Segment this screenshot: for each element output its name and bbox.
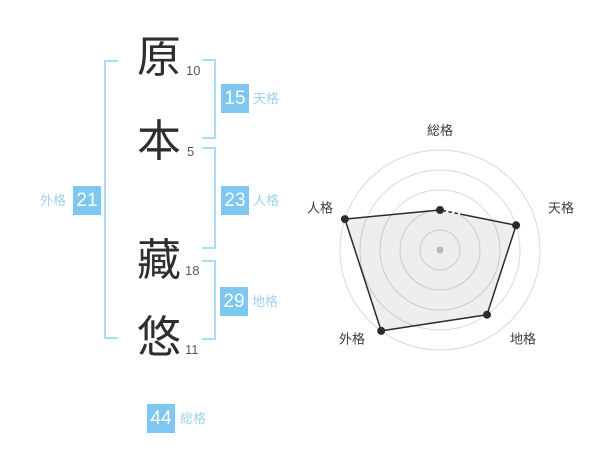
surname-char-2-strokes: 5 <box>187 145 194 158</box>
tenkaku-bracket <box>202 59 216 139</box>
given-char-2-strokes: 11 <box>185 343 199 356</box>
surname-char-1: 原 <box>136 36 182 80</box>
chikaku-value-badge: 29 <box>220 287 248 316</box>
jinkaku-bracket <box>202 147 216 249</box>
chikaku-bracket <box>202 260 216 340</box>
radar-axis-label-soukaku: 総格 <box>427 123 453 138</box>
tenkaku-label: 天格 <box>253 92 279 105</box>
given-char-1: 藏 <box>136 239 182 283</box>
radar-chart: 総格 天格 地格 外格 人格 <box>300 95 600 375</box>
radar-axis-label-jinkaku: 人格 <box>307 201 333 216</box>
gaikaku-bracket <box>104 60 118 339</box>
gaikaku-label: 外格 <box>40 194 66 207</box>
tenkaku-value-badge: 15 <box>221 84 249 113</box>
jinkaku-value-badge: 23 <box>221 186 249 215</box>
surname-char-2: 本 <box>136 120 182 164</box>
surname-char-1-strokes: 10 <box>186 64 200 77</box>
soukaku-value-badge: 44 <box>147 404 175 433</box>
radar-axis-label-tenkaku: 天格 <box>548 201 574 216</box>
soukaku-label: 総格 <box>180 412 206 425</box>
radar-axis-label-chikaku: 地格 <box>510 332 536 347</box>
given-char-2: 悠 <box>136 316 182 360</box>
given-char-1-strokes: 18 <box>185 264 199 277</box>
jinkaku-label: 人格 <box>253 194 279 207</box>
radar-axis-label-gaikaku: 外格 <box>339 332 365 347</box>
gaikaku-value-badge: 21 <box>73 186 101 215</box>
chikaku-label: 地格 <box>252 295 278 308</box>
name-analysis-page: 原 10 本 5 藏 18 悠 11 15 天格 23 人格 29 地格 21 … <box>0 0 600 470</box>
